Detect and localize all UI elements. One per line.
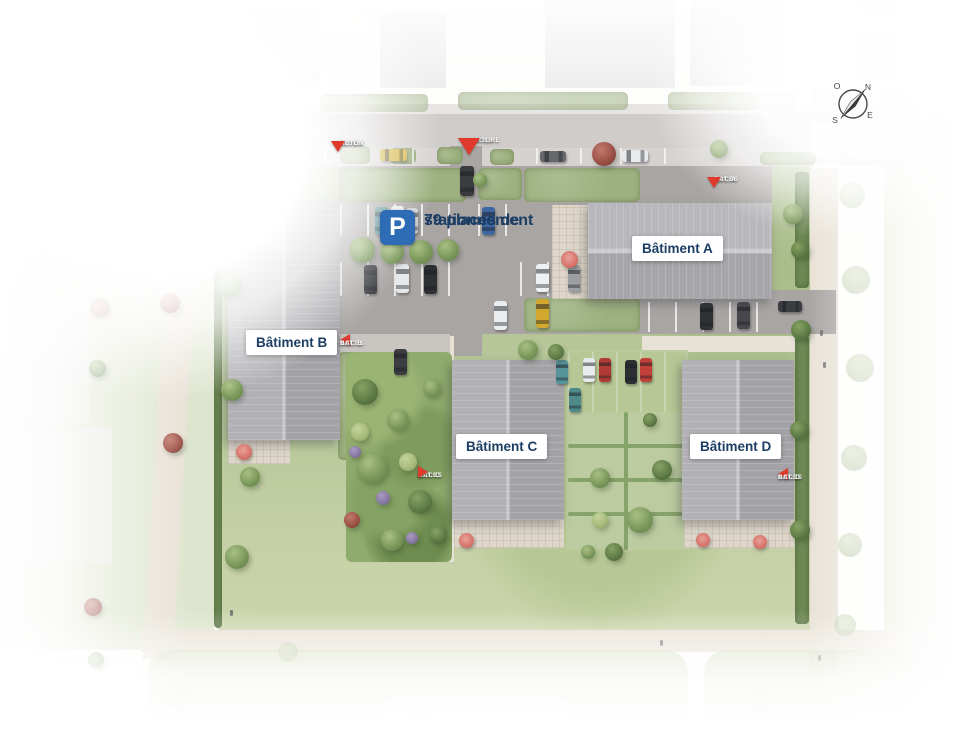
car	[112, 129, 132, 139]
tree	[518, 340, 538, 360]
tree	[790, 520, 810, 540]
tree	[406, 532, 418, 544]
building-d-label[interactable]: Bâtiment D	[690, 434, 781, 459]
tree	[846, 354, 874, 382]
arrow-right-icon	[418, 466, 428, 478]
car	[556, 360, 568, 384]
car	[625, 360, 637, 384]
parking-icon-letter: P	[389, 213, 406, 242]
tree	[473, 173, 487, 187]
car	[494, 301, 507, 330]
pedestrian	[823, 362, 826, 368]
umbrella-icon	[459, 533, 474, 548]
arrow-down-icon	[331, 141, 345, 152]
umbrella-icon	[696, 533, 710, 547]
car	[424, 265, 437, 294]
tree	[790, 421, 808, 439]
car	[380, 149, 407, 161]
tree	[376, 491, 390, 505]
car	[569, 388, 581, 412]
tree	[344, 512, 360, 528]
tree	[349, 446, 361, 458]
pedestrian	[818, 655, 821, 661]
umbrella-icon	[753, 535, 767, 549]
car	[460, 166, 474, 196]
tree	[157, 211, 179, 233]
tree	[548, 344, 564, 360]
tree	[842, 266, 870, 294]
tree	[710, 140, 728, 158]
tree	[592, 512, 608, 528]
car	[396, 264, 409, 293]
compass-rose: N O E S	[820, 70, 886, 136]
arrow-down-icon	[707, 177, 721, 188]
tree	[652, 460, 672, 480]
tree	[581, 545, 595, 559]
pedestrian	[660, 640, 663, 646]
car	[540, 151, 566, 162]
tree	[399, 453, 417, 471]
tree	[387, 409, 409, 431]
tree	[240, 467, 260, 487]
tree	[839, 182, 865, 208]
tree	[218, 273, 242, 297]
tree	[90, 298, 110, 318]
car	[896, 136, 922, 146]
tree	[605, 543, 623, 561]
car	[568, 265, 580, 292]
tree	[167, 689, 189, 711]
tree	[89, 360, 106, 377]
pedestrian	[820, 330, 823, 336]
umbrella-icon	[561, 251, 578, 268]
tree	[841, 445, 867, 471]
tree	[791, 241, 809, 259]
compass-north-label: N	[865, 82, 871, 92]
tree	[352, 379, 378, 405]
tree	[357, 453, 387, 483]
tree	[88, 652, 104, 668]
tree	[749, 692, 771, 714]
umbrella-icon	[236, 444, 252, 460]
tree	[590, 468, 610, 488]
car	[622, 150, 648, 162]
tree	[351, 423, 369, 441]
car	[86, 128, 110, 139]
building-b-label[interactable]: Bâtiment B	[246, 330, 337, 355]
car	[640, 358, 652, 382]
car	[394, 349, 407, 375]
car	[364, 265, 377, 294]
compass-needle-icon	[838, 87, 868, 121]
tree	[140, 142, 160, 162]
tree	[225, 545, 249, 569]
tree	[423, 379, 441, 397]
tree	[160, 293, 180, 313]
parking-icon: P	[380, 210, 415, 245]
car	[536, 299, 549, 328]
site-plan: BOULEVARD P 79 places de stationnement B…	[0, 0, 958, 731]
tree	[381, 529, 403, 551]
car	[737, 302, 750, 329]
compass-south-label: S	[832, 115, 838, 125]
arrow-down-icon	[458, 138, 480, 155]
tree	[437, 239, 459, 261]
tree	[221, 379, 243, 401]
tree	[791, 320, 811, 340]
tree	[410, 702, 430, 722]
tree	[834, 614, 856, 636]
compass-west-label: O	[834, 81, 841, 91]
compass-east-label: E	[867, 110, 873, 120]
building-a-label[interactable]: Bâtiment A	[632, 236, 723, 261]
pedestrian	[230, 610, 233, 616]
tree	[783, 204, 803, 224]
building-b[interactable]	[228, 200, 340, 440]
tree	[408, 490, 432, 514]
tree	[592, 142, 616, 166]
car	[536, 264, 549, 292]
parking-count-line2: stationnement	[424, 212, 533, 230]
car	[599, 358, 611, 382]
car	[700, 303, 713, 330]
tree	[838, 533, 862, 557]
tree	[627, 507, 653, 533]
tree	[84, 598, 102, 616]
tree	[278, 642, 298, 662]
tree	[219, 142, 245, 168]
tree	[429, 526, 447, 544]
car	[284, 151, 310, 163]
tree	[163, 433, 183, 453]
tree	[643, 413, 657, 427]
car	[583, 358, 595, 382]
building-c-label[interactable]: Bâtiment C	[456, 434, 547, 459]
car	[778, 301, 802, 312]
tree	[349, 237, 375, 263]
street-name-label: BOULEVARD	[231, 125, 323, 137]
